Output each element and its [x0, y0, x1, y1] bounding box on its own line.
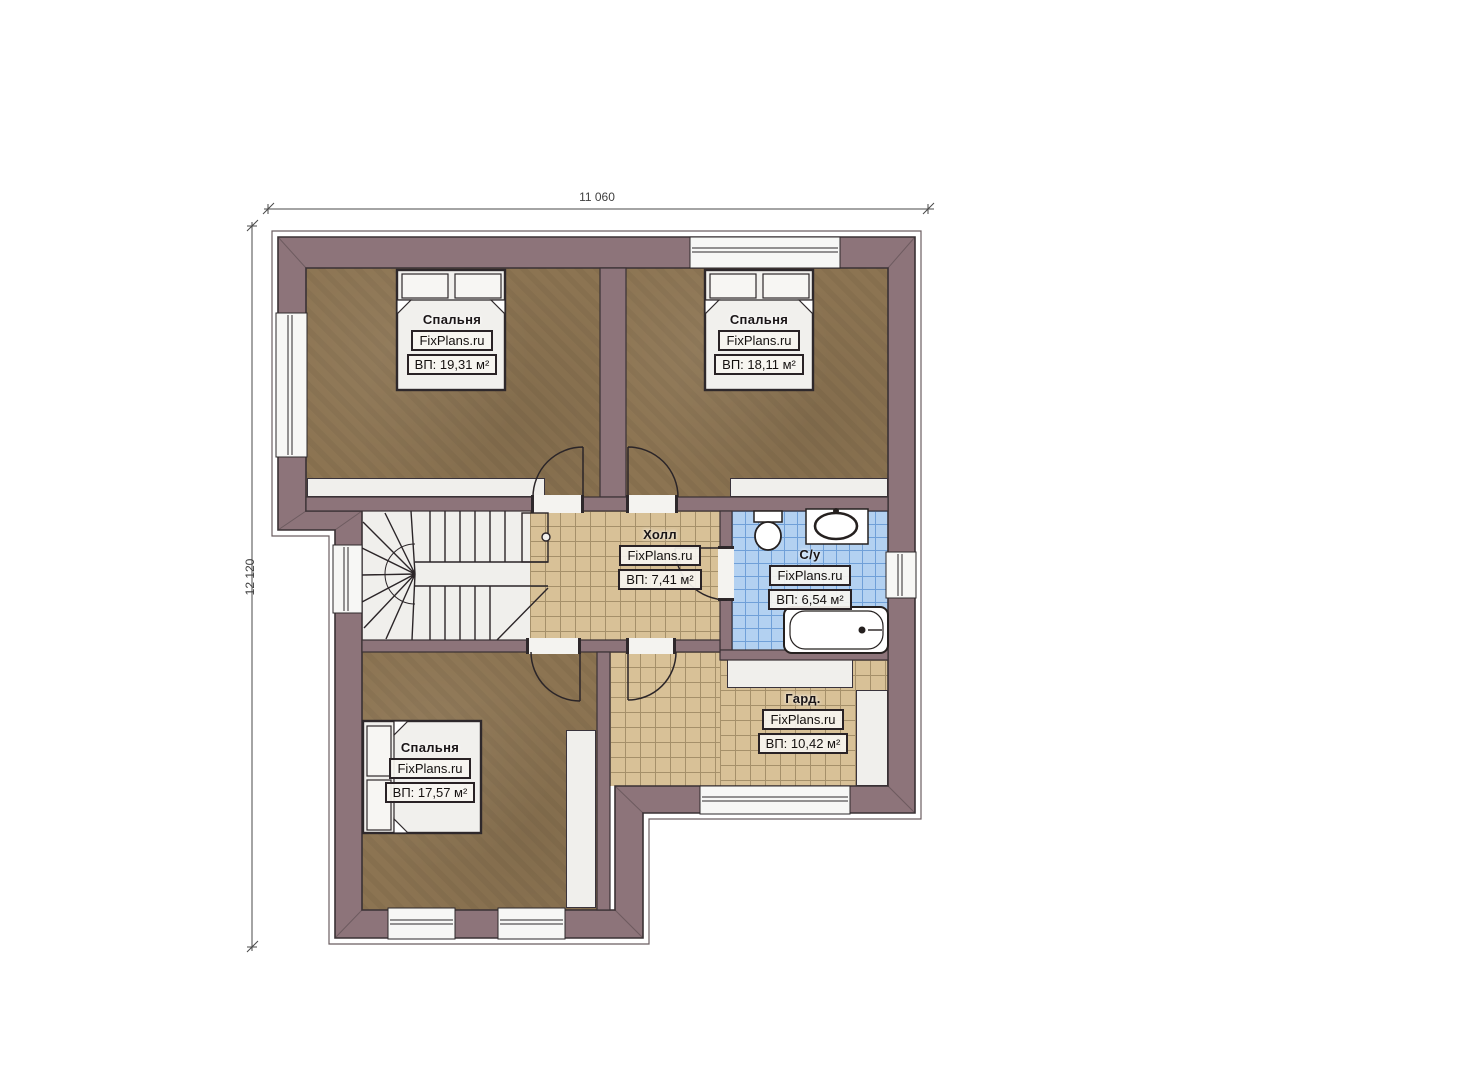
room-label-bathroom: С/у FixPlans.ru ВП: 6,54 м²: [740, 547, 880, 610]
bedroom3-closet: [566, 730, 596, 908]
room-label-hall: Холл FixPlans.ru ВП: 7,41 м²: [590, 527, 730, 590]
room-area-bedroom2: ВП: 18,11 м²: [714, 354, 804, 375]
bedroom1-dresser: [307, 478, 545, 497]
room-name-hall: Холл: [643, 527, 677, 542]
brand-badge: FixPlans.ru: [619, 545, 700, 566]
room-area-bedroom1: ВП: 19,31 м²: [407, 354, 498, 375]
room-area-bathroom: ВП: 6,54 м²: [768, 589, 851, 610]
room-name-bedroom3: Спальня: [401, 740, 459, 755]
room-area-wardrobe: ВП: 10,42 м²: [758, 733, 849, 754]
room-label-bedroom2: Спальня FixPlans.ru ВП: 18,11 м²: [689, 312, 829, 375]
room-area-bedroom3: ВП: 17,57 м²: [385, 782, 476, 803]
bedroom2-floor: [626, 268, 888, 497]
dimension-height-label: 12 120: [243, 535, 257, 619]
corridor-floor: [610, 652, 720, 786]
bedroom2-dresser: [730, 478, 888, 497]
brand-badge: FixPlans.ru: [762, 709, 843, 730]
room-label-bedroom1: Спальня FixPlans.ru ВП: 19,31 м²: [382, 312, 522, 375]
room-name-bedroom1: Спальня: [423, 312, 481, 327]
bedroom1-floor: [306, 268, 600, 497]
room-name-bedroom2: Спальня: [730, 312, 788, 327]
room-area-hall: ВП: 7,41 м²: [618, 569, 701, 590]
brand-badge: FixPlans.ru: [718, 330, 799, 351]
room-label-wardrobe: Гард. FixPlans.ru ВП: 10,42 м²: [733, 691, 873, 754]
brand-badge: FixPlans.ru: [389, 758, 470, 779]
room-name-bathroom: С/у: [799, 547, 820, 562]
room-label-bedroom3: Спальня FixPlans.ru ВП: 17,57 м²: [360, 740, 500, 803]
floor-plan: 11 060 12 120 Спальня FixPlans.ru ВП: 19…: [0, 0, 1473, 1080]
stairwell-floor: [362, 511, 530, 640]
wardrobe-shelf-top: [727, 658, 853, 688]
brand-badge: FixPlans.ru: [411, 330, 492, 351]
room-name-wardrobe: Гард.: [785, 691, 820, 706]
brand-badge: FixPlans.ru: [769, 565, 850, 586]
dimension-width-label: 11 060: [537, 190, 657, 204]
